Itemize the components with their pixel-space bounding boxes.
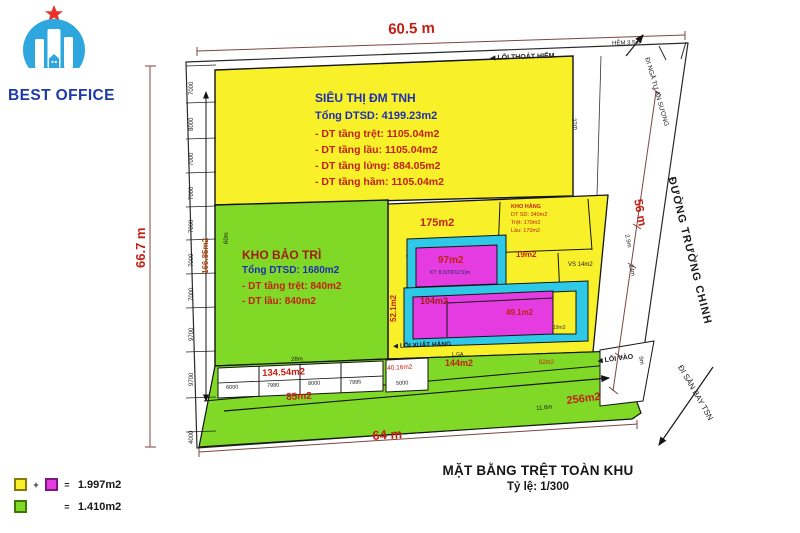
storage-line2: DT SD: 340m2 [511,213,547,219]
legend-eq-2: = [62,502,71,512]
area-49-label: 49.1m2 [506,309,533,317]
alley-notch-line [659,46,666,60]
tick-line [186,172,216,173]
area-85-label: 85m2 [286,392,312,403]
legend-value-2: 1.410m2 [78,501,121,513]
tick-line [186,307,216,308]
tick-line [186,102,216,103]
supermarket-floor3: - DT tầng lửng: 884.05m2 [315,161,440,172]
area-vs-label: VS 14m2 [568,262,593,268]
plan-title: MẶT BẰNG TRỆT TOÀN KHU [433,463,643,478]
tick-line [186,138,216,139]
alley-notch-line2 [681,42,686,59]
cell-num-1: 7980 [267,384,279,390]
maintenance-total: Tổng DTSD: 1680m2 [242,266,339,276]
dim-60-label: 60m [224,232,230,244]
area-175-label: 175m2 [420,218,454,229]
supermarket-name: SIÊU THỊ ĐM TNH [315,92,416,104]
cell-num-3: 7995 [349,381,361,387]
cell-num-2: 8000 [308,382,320,388]
title-block: MẶT BẰNG TRỆT TOÀN KHU Tỷ lệ: 1/300 [433,463,643,493]
pink-unit-top [416,245,497,287]
plan-scale: Tỷ lệ: 1/300 [433,481,643,493]
supermarket-floor1: - DT tầng trệt: 1105.04m2 [315,129,439,140]
logo-window-dot2 [55,61,57,63]
site-plan-page: BEST OFFICE 60.5 m HẺM 3.5m 66.7 m 56 m … [0,0,800,533]
storage-line1: KHO HÀNG [511,205,541,211]
span-arrow-label: 166.85m2 [202,238,210,274]
area-40-label: 40.16m2 [387,365,413,373]
area-19-label: 19m2 [516,251,536,259]
dim-top-label: 60.5 m [388,21,435,37]
storage-line4: Lầu: 170m2 [511,229,540,235]
legend-eq-1: = [62,480,71,490]
cell-num-5000: 5000 [396,381,409,387]
left-tick-4: 7000 [189,220,195,233]
tick-line [186,65,216,66]
left-tick-3: 7000 [189,187,195,200]
area-97-note: KT: 8.0(T8/12.5)m [430,271,470,276]
legend-spacer-2 [45,500,58,513]
area-52-label: 52.1m2 [390,295,398,322]
supermarket-floor2: - DT tầng lầu: 1105.04m2 [315,145,438,156]
storage-line3: Trệt: 170m2 [511,221,540,227]
legend-green-swatch [14,500,27,513]
alley-label: HẺM 3.5m [612,40,641,47]
legend-magenta-swatch [45,478,58,491]
legend: + = 1.997m2 = 1.410m2 [14,476,164,520]
supermarket-total: Tổng DTSD: 4199.23m2 [315,111,437,122]
legend-row-1: + = 1.997m2 [14,476,164,498]
logo-window-dot [51,61,53,63]
left-tick-8: 9700 [189,373,195,386]
dim-bottom-label: 64 m [372,427,402,442]
cell-num-0: 6000 [226,386,238,392]
tick-line [186,351,216,352]
area-62-label: 62m2 [539,360,554,366]
area-19b-label: 19m2 [553,326,566,331]
side-strip-line [597,56,601,196]
maintenance-floor1: - DT tầng trệt: 840m2 [242,282,341,292]
legend-yellow-swatch [14,478,27,491]
dim-9-label: 9m [637,356,644,365]
legend-value-1: 1.997m2 [78,479,121,491]
logo-tower-right [64,37,73,68]
left-tick-9: 4000 [189,431,195,444]
dim-28-label: 28m [291,357,303,363]
left-tick-1: 8000 [189,118,195,131]
logo-wordmark: BEST OFFICE [8,87,156,105]
area-104-label: 104m2 [420,297,448,306]
legend-row-2: = 1.410m2 [14,498,164,520]
logo-building-icon [6,4,102,86]
left-tick-5: 7000 [189,254,195,267]
area-97-label: 97m2 [438,256,464,266]
entry-wedge [600,341,654,406]
maintenance-floor2: - DT lầu: 840m2 [242,297,316,307]
left-tick-2: 7000 [189,153,195,166]
area-134-label: 134.54m2 [262,368,305,379]
maintenance-name: KHO BẢO TRÌ [242,249,321,261]
logo-tower-left [35,39,44,68]
area-144-label: 144m2 [445,359,473,368]
left-tick-6: 7000 [189,288,195,301]
dim-left-label: 66.7 m [134,228,147,268]
left-tick-7: 9700 [189,328,195,341]
logo-base-mask [18,68,90,86]
legend-plus: + [31,480,40,490]
left-tick-0: 7000 [189,82,195,95]
supermarket-floor4: - DT tầng hầm: 1105.04m2 [315,177,444,188]
best-office-logo: BEST OFFICE [6,4,156,105]
